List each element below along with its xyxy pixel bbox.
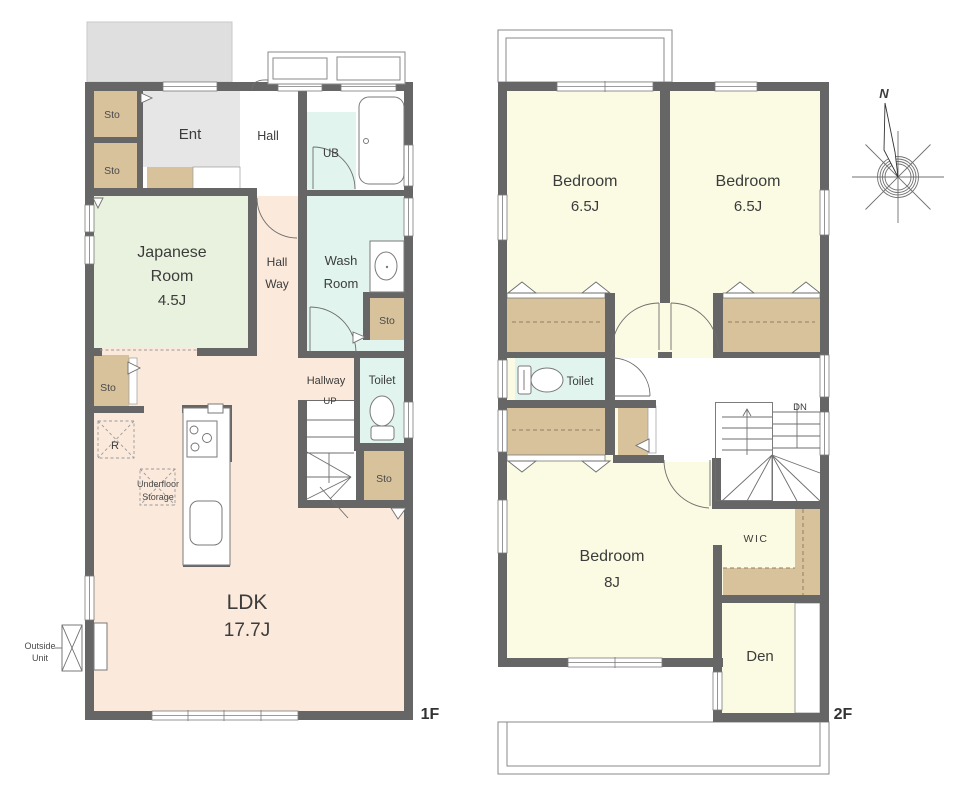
storage5-floor [94, 355, 129, 406]
sink-icon [190, 501, 222, 545]
wash-room-label-1: Wash [325, 253, 358, 268]
closet-bedroom2 [723, 298, 820, 352]
bedroom1-size: 6.5J [571, 198, 599, 215]
outside-unit-label-2: Unit [32, 653, 49, 663]
hallway2-floor-b [648, 402, 715, 462]
bedroom2-size: 6.5J [734, 198, 762, 215]
toilet2-label: Toilet [567, 376, 595, 388]
ldk-label: LDK [227, 591, 268, 614]
storage1-label: Sto [104, 109, 120, 121]
floor2-plan: Bedroom 6.5J Bedroom 6.5J Bedroom 8J Toi… [498, 30, 853, 774]
stairs1-floor [307, 400, 356, 500]
ldk-size: 17.7J [224, 620, 270, 641]
hallway-upper-label-1: Hall [267, 255, 288, 269]
entrance-label: Ent [179, 126, 202, 143]
floorplan-canvas: Sto Sto Sto Sto Sto Ent Hall UB Japanese… [0, 0, 959, 800]
storage5-label: Sto [100, 382, 116, 394]
underfloor-label-2: Storage [142, 492, 174, 502]
closet-bedroom1 [507, 298, 605, 352]
balcony-bottom [498, 722, 829, 774]
unit-bath-label: UB [323, 148, 339, 160]
stairs-up-label: UP [323, 396, 336, 407]
stairs-dn-label: DN [793, 402, 807, 413]
entry-step-tan [147, 167, 193, 190]
wic-shelf-bottom [723, 568, 820, 595]
bedroom2-label: Bedroom [716, 173, 781, 190]
floorplan-page: Sto Sto Sto Sto Sto Ent Hall UB Japanese… [0, 0, 959, 800]
floor2-label: 2F [834, 706, 853, 723]
wic-label: WIC [744, 533, 769, 545]
floor1-plan: Sto Sto Sto Sto Sto Ent Hall UB Japanese… [24, 22, 439, 723]
hallway-upper-label-2: Way [265, 277, 289, 291]
hallway-lower-label: Hallway [307, 375, 346, 387]
compass-rose-icon: N [852, 86, 944, 223]
japanese-room-size: 4.5J [158, 292, 186, 309]
wash-room-label-2: Room [324, 276, 359, 291]
den-counter [795, 603, 820, 713]
bedroom1-label: Bedroom [553, 173, 618, 190]
storage2-label: Sto [104, 165, 120, 177]
toilet2-fixture-icon [531, 368, 563, 392]
wall-cabinet-icon [94, 623, 107, 670]
entry-step-white [193, 167, 240, 190]
outside-unit-label-1: Outside [24, 641, 55, 651]
hallway2-floor-a [615, 358, 820, 402]
den-label: Den [746, 648, 774, 665]
fridge-label: R [111, 440, 119, 452]
wic-shelf-right [795, 509, 820, 568]
closet-bedroom3 [507, 408, 605, 455]
outside-unit-icon [55, 625, 82, 671]
storage4-label: Sto [376, 473, 392, 485]
fixtures-2f [518, 366, 563, 394]
toilet1-fixture-icon [370, 396, 394, 426]
toilet1-label: Toilet [369, 375, 397, 387]
kitchen-island-icon [183, 404, 230, 565]
storage3-label: Sto [379, 315, 395, 327]
floor1-label: 1F [421, 706, 440, 723]
underfloor-label-1: Underfloor [137, 479, 179, 489]
toilet2-tank-icon [518, 366, 531, 394]
japanese-room-label-2: Room [151, 268, 194, 285]
bedroom3-size: 8J [604, 574, 620, 591]
japanese-room-label-1: Japanese [137, 244, 206, 261]
bay-window-structure [252, 52, 405, 90]
bedroom3-label: Bedroom [580, 548, 645, 565]
compass-north-label: N [879, 86, 889, 101]
hall-label: Hall [257, 129, 279, 143]
balcony-top [498, 30, 672, 82]
porch-area [87, 22, 232, 82]
